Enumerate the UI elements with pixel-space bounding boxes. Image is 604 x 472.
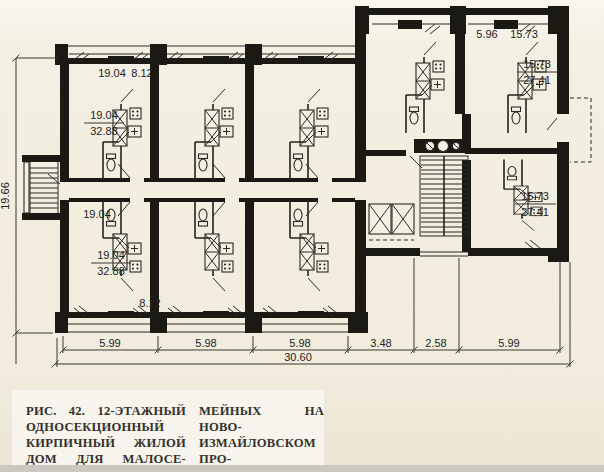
figure-caption: РИС. 42. 12-ЭТАЖНЫЙ ОДНОСЕКЦИОННЫЙ КИРПИ… [26, 404, 324, 472]
caption-line: ОДНОСЕКЦИОННЫЙ [26, 420, 186, 436]
dim-total-length: 30.60 [284, 351, 312, 363]
book-page: 19.04 8.12 19.04 32.88 19.04 19.04 32.88… [0, 0, 604, 472]
label-area-total-b: 32.88 [97, 265, 125, 277]
fire-escape-stair [22, 155, 62, 220]
caption-line: ИЗМАЙЛОВСКОМ ПРО- [199, 436, 324, 468]
label-tower-room: 15.73 [510, 28, 538, 40]
entrance-vestibule [410, 139, 471, 168]
caption-column-2: МЕЙНЫХ НА НОВО- ИЗМАЙЛОВСКОМ ПРО- СПЕКТЕ… [199, 404, 324, 472]
dim-segment-5: 2.58 [425, 337, 446, 349]
corridor [69, 164, 355, 216]
dim-segment-2: 5.98 [195, 337, 216, 349]
dim-total-depth: 19.66 [0, 182, 11, 210]
dim-segment-6: 5.99 [498, 337, 519, 349]
label-tower-area-total-a: 27.41 [523, 74, 551, 86]
left-wing [48, 44, 368, 333]
label-tower-area-total-b: 27.41 [521, 206, 549, 218]
staircase [420, 156, 468, 236]
label-tower-area-living-b: 15.73 [521, 190, 549, 202]
dim-segment-4: 3.48 [370, 337, 391, 349]
floor-plan-drawing: 19.04 8.12 19.04 32.88 19.04 19.04 32.88… [0, 0, 604, 398]
caption-line: МЕЙНЫХ НА НОВО- [199, 404, 324, 436]
flat-fixtures [103, 89, 328, 291]
tower-section [355, 6, 591, 318]
page-edge-shadow [0, 465, 604, 472]
caption-line: КИРПИЧНЫЙ ЖИЛОЙ [26, 436, 186, 452]
label-area-total-a: 32.88 [90, 125, 118, 137]
label-kitchen-width-b: 8.12 [139, 297, 160, 309]
label-room-width-b: 19.04 [83, 208, 111, 220]
elevator-shafts [369, 204, 414, 240]
label-area-living-a: 19.04 [90, 109, 118, 121]
dim-segment-1: 5.99 [99, 337, 120, 349]
label-tower-area-living-a: 15.73 [523, 58, 551, 70]
caption-line: РИС. 42. 12-ЭТАЖНЫЙ [26, 404, 186, 420]
dim-segment-3: 5.98 [289, 337, 310, 349]
label-tower-hall: 5.96 [476, 28, 497, 40]
label-area-living-b: 19.04 [97, 249, 125, 261]
label-room-width: 19.04 [98, 67, 126, 79]
label-kitchen-width: 8.12 [131, 67, 152, 79]
caption-column-1: РИС. 42. 12-ЭТАЖНЫЙ ОДНОСЕКЦИОННЫЙ КИРПИ… [26, 404, 186, 472]
